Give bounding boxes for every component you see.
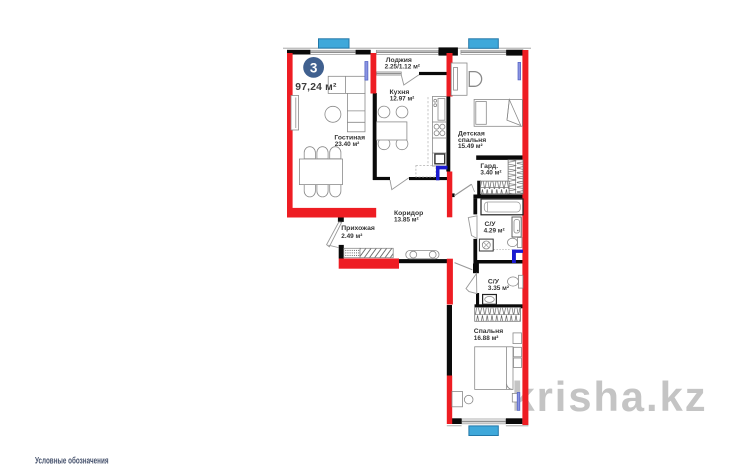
svg-text:Условные обозначения: Условные обозначения (35, 456, 109, 466)
svg-text:2.49 м²: 2.49 м² (341, 233, 362, 240)
svg-text:16.88 м²: 16.88 м² (474, 335, 499, 342)
svg-text:3: 3 (310, 61, 318, 76)
svg-text:krisha.kz: krisha.kz (512, 373, 708, 420)
svg-text:3.35 м²: 3.35 м² (488, 285, 509, 292)
svg-text:97,24 м²: 97,24 м² (295, 82, 337, 93)
svg-text:2.25/1.12 м²: 2.25/1.12 м² (385, 63, 420, 70)
svg-text:Прихожая: Прихожая (341, 225, 375, 232)
svg-text:15.49 м²: 15.49 м² (458, 143, 483, 150)
svg-text:4.29 м²: 4.29 м² (484, 228, 505, 235)
svg-text:Спальня: Спальня (474, 328, 503, 335)
svg-text:12.97 м²: 12.97 м² (390, 95, 415, 102)
svg-text:23.40 м²: 23.40 м² (335, 141, 360, 148)
svg-text:3.40 м²: 3.40 м² (480, 169, 501, 176)
svg-text:13.85 м²: 13.85 м² (394, 216, 419, 223)
